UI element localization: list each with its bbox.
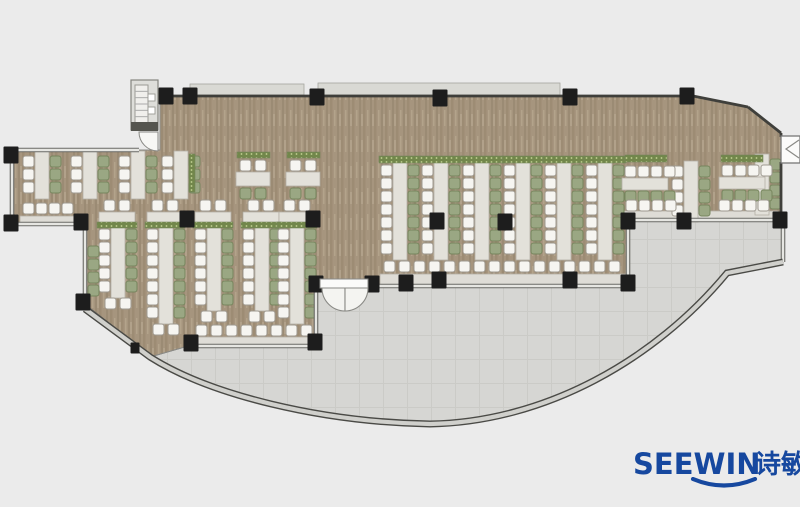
chair-green (98, 182, 109, 193)
chair-white (62, 203, 73, 214)
chair-white (256, 325, 267, 336)
chair-white (278, 307, 289, 318)
chair-white (167, 200, 178, 211)
column (180, 211, 195, 228)
chair-green (305, 229, 316, 240)
chair-green (572, 243, 583, 254)
chair-white (23, 182, 34, 193)
chair-white (299, 200, 310, 211)
chair-white (463, 243, 474, 254)
chair-white (23, 169, 34, 180)
chair-white (504, 191, 515, 202)
chair-white (71, 156, 82, 167)
chair-green (126, 268, 137, 279)
table-square (286, 172, 320, 186)
chair-white (586, 191, 597, 202)
chair-white (504, 204, 515, 215)
chair-white (255, 160, 266, 171)
chair-white (147, 255, 158, 266)
door-recess (781, 136, 800, 163)
chair-white (489, 261, 500, 272)
planter (543, 156, 585, 163)
chair-white (545, 217, 556, 228)
chair-white (152, 200, 163, 211)
chair-white (545, 204, 556, 215)
chair-green (572, 217, 583, 228)
planter (241, 222, 281, 228)
chair-white (474, 261, 485, 272)
column (430, 213, 445, 230)
chair-white (278, 242, 289, 253)
chair-green (699, 166, 710, 177)
chair-green (222, 255, 233, 266)
chair-white (147, 229, 158, 240)
table-long (83, 151, 97, 199)
stair-fixture (148, 107, 155, 114)
table (99, 212, 135, 223)
chair-white (444, 261, 455, 272)
chair-white (545, 230, 556, 241)
chair-white (147, 294, 158, 305)
table-long (174, 151, 188, 199)
chair-green (572, 230, 583, 241)
chair-green (88, 246, 99, 257)
chair-white (422, 178, 433, 189)
chair-white (399, 261, 410, 272)
chair-green (222, 268, 233, 279)
chair-white (745, 200, 756, 211)
chair-white (211, 325, 222, 336)
bench-counter (380, 274, 628, 285)
chair-green (613, 165, 624, 176)
column (159, 88, 174, 105)
table-long (207, 224, 221, 311)
chair-white (99, 281, 110, 292)
chair-white (284, 200, 295, 211)
logo-chinese-text: 诗敏 (755, 452, 800, 478)
chair-green (174, 281, 185, 292)
chair-green (408, 165, 419, 176)
chair-white (381, 217, 392, 228)
chair-white (504, 230, 515, 241)
chair-white (147, 281, 158, 292)
chair-white (248, 200, 259, 211)
chair-white (545, 178, 556, 189)
chair-white (195, 268, 206, 279)
floor-plan-image (0, 0, 800, 507)
chair-white (305, 160, 316, 171)
chair-white (243, 281, 254, 292)
table-long (393, 160, 407, 260)
chair-white (381, 230, 392, 241)
chair-green (490, 204, 501, 215)
chair-white (119, 169, 130, 180)
planter (287, 152, 320, 158)
chair-white (147, 268, 158, 279)
chair-green (490, 230, 501, 241)
chair-white (200, 200, 211, 211)
chair-green (613, 230, 624, 241)
chair-white (195, 255, 206, 266)
chair-white (652, 200, 663, 211)
chair-white (278, 255, 289, 266)
chair-green (146, 156, 157, 167)
chair-white (422, 191, 433, 202)
chair-white (586, 217, 597, 228)
chair-white (414, 261, 425, 272)
chair-green (449, 204, 460, 215)
table-long (622, 178, 668, 190)
chair-white (278, 281, 289, 292)
chair-white (278, 294, 289, 305)
chair-white (120, 298, 131, 309)
chair-white (381, 178, 392, 189)
column (680, 88, 695, 105)
chair-green (531, 243, 542, 254)
chair-green (572, 191, 583, 202)
chair-white (147, 307, 158, 318)
chair-white (579, 261, 590, 272)
column (773, 212, 788, 229)
chair-white (241, 325, 252, 336)
column (498, 214, 513, 231)
chair-white (519, 261, 530, 272)
chair-green (735, 190, 746, 201)
planter (420, 156, 462, 163)
chair-white (162, 169, 173, 180)
chair-white (71, 182, 82, 193)
column (4, 147, 19, 164)
chair-green (174, 242, 185, 253)
chair-green (98, 169, 109, 180)
table (195, 212, 231, 223)
chair-white (290, 160, 301, 171)
chair-green (240, 188, 251, 199)
chair-green (722, 190, 733, 201)
table-long (475, 160, 489, 260)
chair-white (263, 200, 274, 211)
column (677, 213, 692, 230)
chair-green (222, 294, 233, 305)
chair-green (531, 230, 542, 241)
chair-white (381, 165, 392, 176)
chair-green (146, 169, 157, 180)
chair-green (408, 243, 419, 254)
chair-white (168, 324, 179, 335)
chair-white (564, 261, 575, 272)
chair-green (613, 191, 624, 202)
chair-white (586, 243, 597, 254)
chair-white (586, 165, 597, 176)
chair-white (99, 242, 110, 253)
planter (625, 155, 667, 162)
seewin-logo: SEEWIN 诗敏 (633, 450, 800, 495)
chair-white (722, 165, 733, 176)
chair-white (626, 200, 637, 211)
chair-white (195, 229, 206, 240)
chair-green (408, 191, 419, 202)
chair-white (422, 243, 433, 254)
chair-green (222, 281, 233, 292)
chair-green (531, 217, 542, 228)
chair-green (449, 191, 460, 202)
chair-green (613, 243, 624, 254)
chair-green (408, 204, 419, 215)
chair-white (534, 261, 545, 272)
chair-green (174, 255, 185, 266)
chair-white (748, 165, 759, 176)
chair-white (732, 200, 743, 211)
planter (584, 156, 626, 163)
chair-green (146, 182, 157, 193)
chair-white (195, 294, 206, 305)
chair-white (226, 325, 237, 336)
chair-white (99, 268, 110, 279)
column (306, 211, 321, 228)
chair-white (463, 217, 474, 228)
table-long (159, 224, 173, 324)
chair-white (422, 165, 433, 176)
chair-white (549, 261, 560, 272)
floor-plan (0, 0, 800, 507)
chair-green (126, 242, 137, 253)
chair-white (463, 204, 474, 215)
chair-white (104, 200, 115, 211)
chair-white (215, 200, 226, 211)
chair-white (153, 324, 164, 335)
chair-white (381, 204, 392, 215)
door-leaf (139, 132, 158, 151)
chair-green (88, 259, 99, 270)
chair-white (381, 191, 392, 202)
chair-white (422, 230, 433, 241)
column (183, 88, 198, 105)
chair-white (463, 165, 474, 176)
chair-white (586, 230, 597, 241)
table-square (236, 172, 270, 186)
column (621, 213, 636, 230)
chair-green (174, 307, 185, 318)
chair-white (243, 268, 254, 279)
logo-swoosh-icon (689, 477, 759, 491)
chair-white (758, 200, 769, 211)
table-long (516, 160, 530, 260)
chair-green (50, 156, 61, 167)
chair-white (240, 160, 251, 171)
table (243, 212, 279, 223)
page: SEEWIN 诗敏 (0, 0, 800, 507)
table-long (111, 224, 125, 298)
chair-white (719, 200, 730, 211)
table (147, 212, 183, 223)
chair-green (255, 188, 266, 199)
chair-green (290, 188, 301, 199)
chair-white (23, 156, 34, 167)
chair-white (99, 229, 110, 240)
chair-green (174, 229, 185, 240)
chair-white (672, 179, 683, 190)
column (563, 89, 578, 106)
door-lintel (320, 279, 368, 288)
column (432, 272, 447, 289)
chair-white (119, 182, 130, 193)
chair-white (71, 169, 82, 180)
chair-green (126, 229, 137, 240)
chair-white (429, 261, 440, 272)
table-long (557, 160, 571, 260)
chair-white (384, 261, 395, 272)
chair-white (147, 242, 158, 253)
chair-green (50, 182, 61, 193)
chair-white (586, 178, 597, 189)
stair-cap (131, 122, 158, 131)
chair-green (222, 242, 233, 253)
chair-white (735, 165, 746, 176)
chair-white (162, 156, 173, 167)
chair-white (545, 191, 556, 202)
chair-white (216, 311, 227, 322)
chair-white (243, 229, 254, 240)
chair-white (243, 255, 254, 266)
chair-white (36, 203, 47, 214)
chair-green (222, 229, 233, 240)
chair-green (572, 204, 583, 215)
chair-white (264, 311, 275, 322)
chair-green (490, 191, 501, 202)
planter (721, 155, 763, 162)
chair-white (249, 311, 260, 322)
table-long (255, 224, 269, 311)
planter (379, 156, 421, 163)
chair-white (99, 255, 110, 266)
chair-white (381, 243, 392, 254)
chair-green (305, 255, 316, 266)
chair-green (490, 165, 501, 176)
chair-green (490, 178, 501, 189)
chair-green (572, 178, 583, 189)
chair-green (531, 178, 542, 189)
planter (193, 222, 233, 228)
chair-white (278, 229, 289, 240)
column (399, 275, 414, 292)
chair-white (271, 325, 282, 336)
chair-white (459, 261, 470, 272)
table-long (131, 151, 145, 199)
table-long (434, 160, 448, 260)
chair-white (665, 200, 676, 211)
chair-green (50, 169, 61, 180)
chair-white (625, 166, 636, 177)
column (433, 90, 448, 107)
chair-white (196, 325, 207, 336)
chair-green (490, 243, 501, 254)
chair-white (201, 311, 212, 322)
planter (145, 222, 185, 228)
chair-green (699, 179, 710, 190)
chair-green (126, 255, 137, 266)
chair-white (594, 261, 605, 272)
planter (502, 156, 544, 163)
chair-white (664, 166, 675, 177)
chair-green (449, 217, 460, 228)
chair-white (162, 182, 173, 193)
table-long (35, 151, 49, 199)
column (308, 334, 323, 351)
table-long (290, 224, 304, 324)
chair-green (305, 188, 316, 199)
planter (237, 152, 270, 158)
chair-green (408, 178, 419, 189)
chair-green (449, 165, 460, 176)
chair-green (305, 242, 316, 253)
chair-white (586, 204, 597, 215)
chair-white (463, 178, 474, 189)
chair-white (463, 191, 474, 202)
chair-green (449, 178, 460, 189)
chair-white (545, 165, 556, 176)
chair-white (23, 203, 34, 214)
chair-green (531, 191, 542, 202)
chair-white (286, 325, 297, 336)
chair-white (49, 203, 60, 214)
chair-white (609, 261, 620, 272)
column (4, 215, 19, 232)
column (76, 294, 91, 311)
column (131, 343, 140, 354)
column (621, 275, 636, 292)
planter (97, 222, 137, 228)
chair-white (545, 243, 556, 254)
chair-white (761, 165, 772, 176)
chair-green (449, 230, 460, 241)
chair-white (651, 166, 662, 177)
chair-white (119, 156, 130, 167)
chair-green (174, 294, 185, 305)
exterior-ledge (190, 84, 304, 95)
chair-green (126, 281, 137, 292)
chair-green (572, 165, 583, 176)
column (184, 335, 199, 352)
chair-white (119, 200, 130, 211)
chair-white (639, 200, 650, 211)
planter (189, 154, 195, 192)
chair-white (504, 178, 515, 189)
chair-white (243, 294, 254, 305)
chair-white (195, 242, 206, 253)
chair-white (463, 230, 474, 241)
planter (461, 156, 503, 163)
chair-green (408, 217, 419, 228)
chair-green (531, 165, 542, 176)
chair-green (408, 230, 419, 241)
chair-green (174, 268, 185, 279)
chair-white (504, 243, 515, 254)
logo-brand-text: SEEWIN (633, 450, 761, 479)
chair-white (243, 242, 254, 253)
chair-green (761, 190, 772, 201)
chair-white (638, 166, 649, 177)
column (563, 272, 578, 289)
chair-white (195, 281, 206, 292)
chair-green (531, 204, 542, 215)
stair-fixture (148, 94, 155, 101)
table-long (719, 177, 765, 189)
chair-green (88, 272, 99, 283)
chair-green (449, 243, 460, 254)
chair-white (278, 268, 289, 279)
column (310, 89, 325, 106)
chair-green (699, 192, 710, 203)
